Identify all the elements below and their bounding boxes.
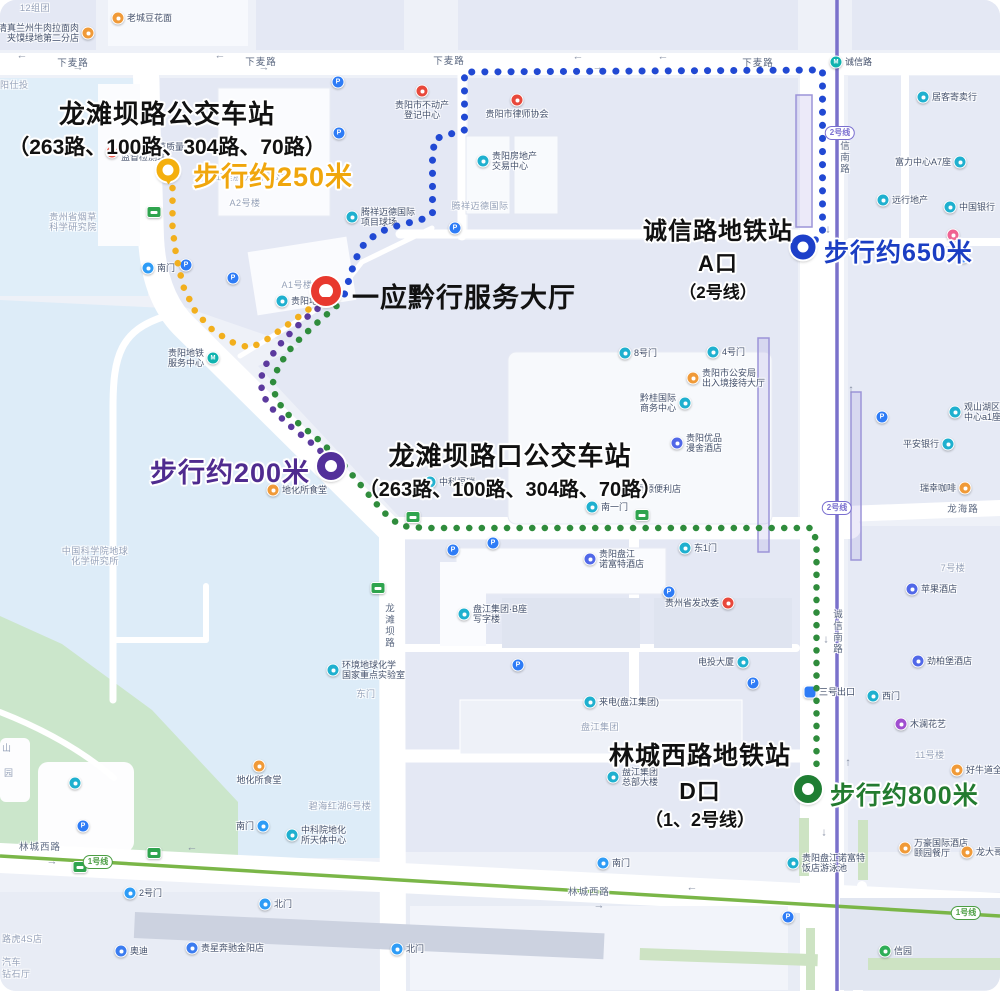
- marker-bus-longtanba[interactable]: [157, 159, 180, 182]
- map-canvas[interactable]: 老城豆花面清真兰州牛肉拉面肉夹馍绿地第二分店贵州省烟草质量监督检测站贵阳市不动产…: [0, 0, 1000, 991]
- marker-layer: [0, 0, 1000, 991]
- marker-metro-lincheng-d[interactable]: [794, 775, 822, 803]
- marker-service-hall[interactable]: [311, 276, 341, 306]
- marker-bus-longtanbakou[interactable]: [317, 452, 345, 480]
- marker-metro-chengxin-a[interactable]: [791, 235, 816, 260]
